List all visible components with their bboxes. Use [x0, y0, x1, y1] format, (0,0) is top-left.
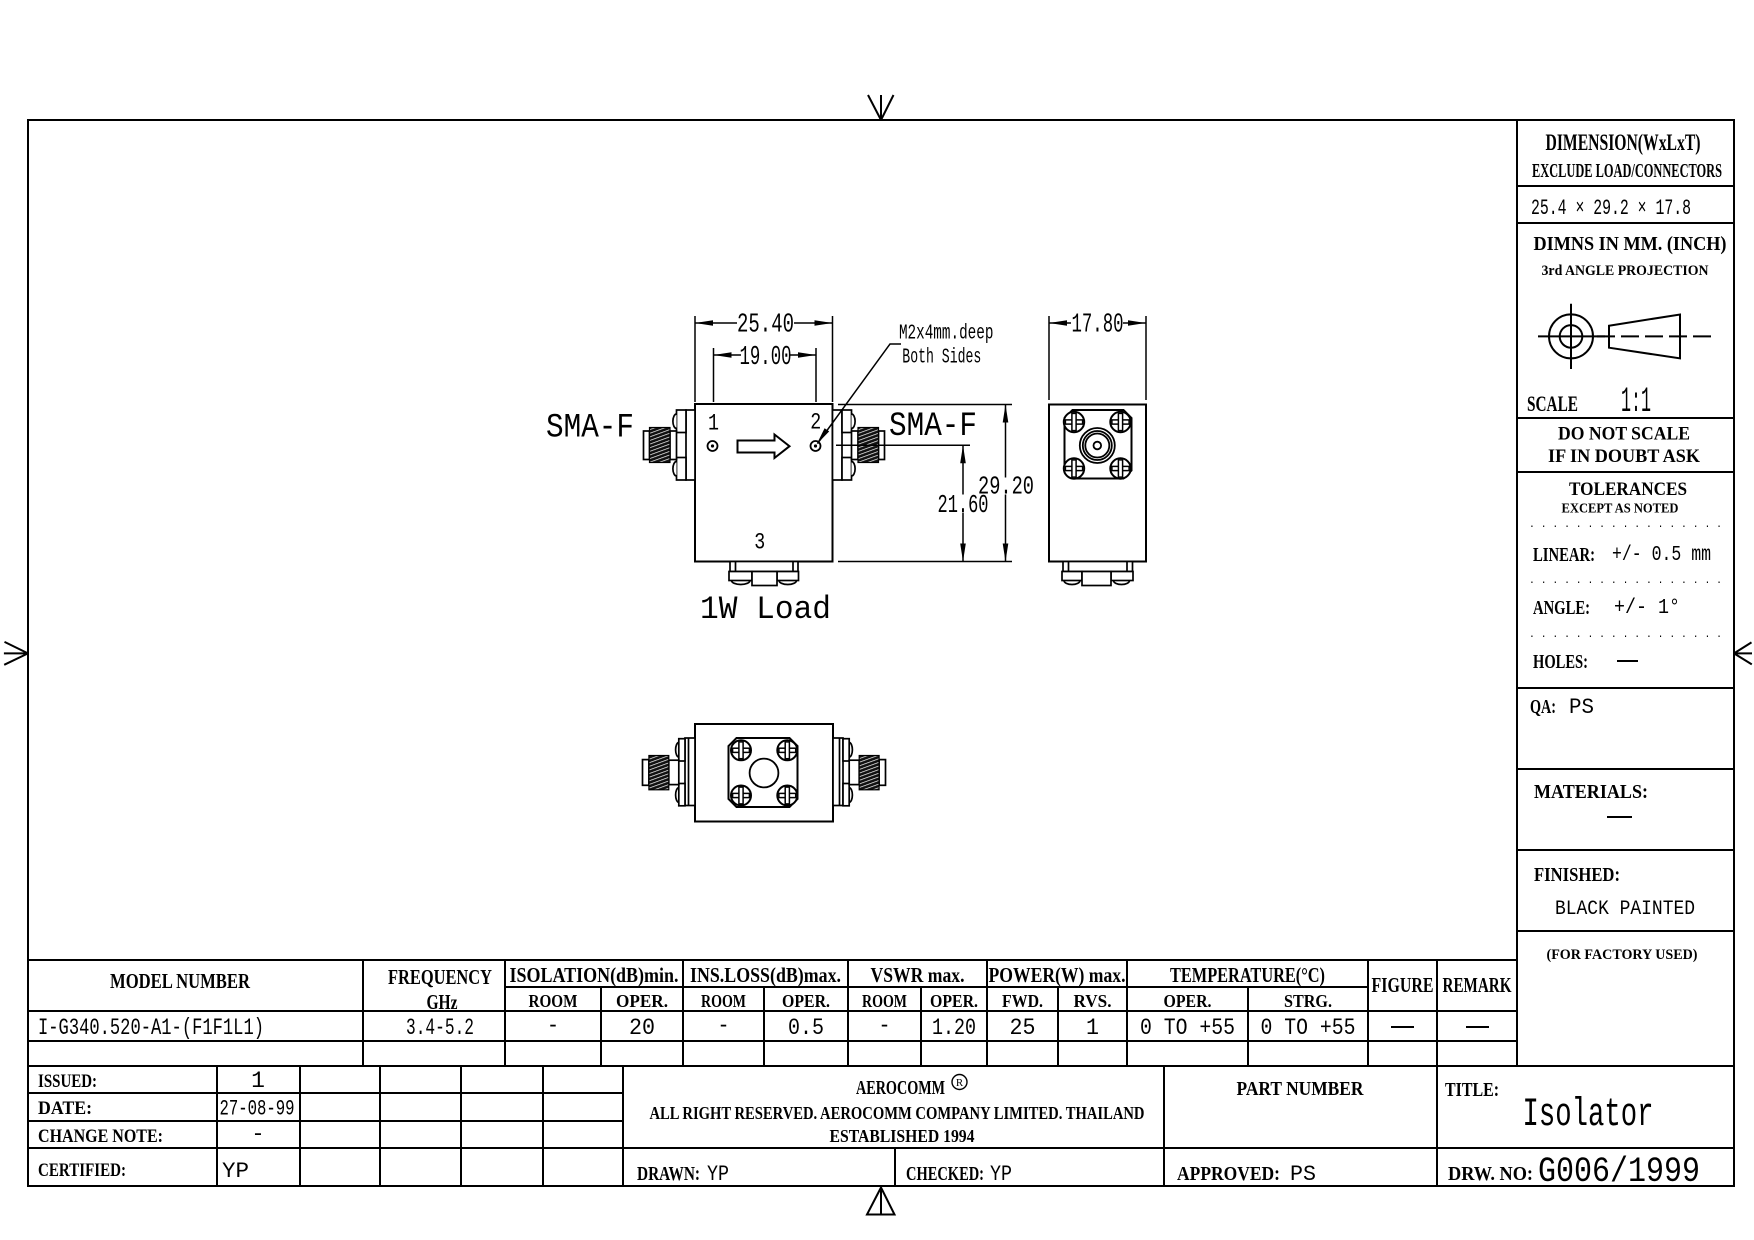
svg-text:DRAWN:: DRAWN:: [637, 1163, 700, 1185]
svg-text:VSWR max.: VSWR max.: [871, 963, 965, 987]
svg-text:ROOM: ROOM: [862, 991, 907, 1011]
svg-text:17.80: 17.80: [1072, 311, 1124, 341]
svg-text:1W Load: 1W Load: [700, 591, 831, 628]
svg-text:0 TO +55: 0 TO +55: [1261, 1015, 1356, 1041]
svg-text:INS.LOSS(dB)max.: INS.LOSS(dB)max.: [690, 963, 841, 987]
svg-text:FWD.: FWD.: [1002, 991, 1043, 1011]
svg-text:3rd ANGLE PROJECTION: 3rd ANGLE PROJECTION: [1542, 263, 1709, 279]
svg-text:FREQUENCY: FREQUENCY: [388, 965, 492, 989]
svg-text:RVS.: RVS.: [1074, 991, 1112, 1011]
svg-text:(FOR FACTORY USED): (FOR FACTORY USED): [1547, 947, 1698, 963]
svg-text:1:1: 1:1: [1621, 382, 1651, 422]
svg-text:CHECKED:: CHECKED:: [906, 1163, 984, 1185]
svg-text:EXCLUDE LOAD/CONNECTORS: EXCLUDE LOAD/CONNECTORS: [1532, 160, 1722, 182]
svg-text:ISSUED:: ISSUED:: [38, 1071, 97, 1092]
svg-text:BLACK PAINTED: BLACK PAINTED: [1555, 898, 1695, 921]
svg-text:ANGLE:: ANGLE:: [1533, 597, 1590, 619]
svg-text:. . . . . . . . . . . . . . .: . . . . . . . . . . . . . . . . .: [1529, 630, 1722, 641]
svg-text:Isolator: Isolator: [1523, 1093, 1654, 1138]
svg-text:MATERIALS:: MATERIALS:: [1534, 781, 1648, 803]
svg-text:21.60: 21.60: [938, 490, 989, 520]
svg-text:QA:: QA:: [1530, 696, 1556, 718]
svg-text:19.00: 19.00: [740, 343, 792, 373]
svg-text:APPROVED:: APPROVED:: [1177, 1163, 1280, 1185]
svg-text:ROOM: ROOM: [529, 991, 578, 1011]
svg-text:EXCEPT AS NOTED: EXCEPT AS NOTED: [1562, 502, 1679, 517]
svg-text:SMA-F: SMA-F: [546, 410, 634, 448]
svg-text:FINISHED:: FINISHED:: [1534, 864, 1620, 886]
svg-text:20: 20: [629, 1015, 655, 1041]
svg-text:POWER(W) max.: POWER(W) max.: [989, 963, 1126, 987]
svg-text:25.40: 25.40: [737, 311, 794, 341]
svg-text:-: -: [547, 1013, 559, 1039]
svg-text:ALL RIGHT RESERVED. AEROCOMM C: ALL RIGHT RESERVED. AEROCOMM COMPANY LIM…: [650, 1103, 1145, 1123]
svg-text:CHANGE NOTE:: CHANGE NOTE:: [38, 1126, 163, 1147]
svg-text:DATE:: DATE:: [38, 1098, 92, 1119]
svg-text:2: 2: [810, 410, 821, 436]
svg-text:TITLE:: TITLE:: [1445, 1079, 1499, 1101]
svg-text:YP: YP: [707, 1162, 729, 1187]
svg-text:LINEAR:: LINEAR:: [1533, 544, 1595, 566]
svg-text:GHz: GHz: [427, 990, 458, 1014]
svg-text:25.4 × 29.2 × 17.8: 25.4 × 29.2 × 17.8: [1531, 196, 1691, 221]
svg-text:SMA-F: SMA-F: [889, 408, 977, 446]
svg-text:DIMENSION(WxLxT): DIMENSION(WxLxT): [1546, 130, 1701, 155]
svg-text:G006/1999: G006/1999: [1538, 1152, 1700, 1192]
svg-text:STRG.: STRG.: [1284, 991, 1332, 1011]
svg-text:-: -: [251, 1122, 264, 1147]
svg-text:-: -: [718, 1013, 730, 1039]
svg-text:1: 1: [251, 1068, 265, 1094]
svg-text:PS: PS: [1290, 1162, 1316, 1187]
svg-text:CERTIFIED:: CERTIFIED:: [38, 1160, 126, 1181]
svg-text:1: 1: [1086, 1015, 1099, 1041]
svg-text:PS: PS: [1569, 695, 1594, 720]
svg-text:I-G340.520-A1-(F1F1L1): I-G340.520-A1-(F1F1L1): [38, 1015, 264, 1041]
svg-text:1: 1: [708, 411, 719, 437]
svg-text:. . . . . . . . . . . . . . .: . . . . . . . . . . . . . . . . .: [1529, 520, 1722, 531]
svg-text:1.20: 1.20: [932, 1015, 976, 1041]
svg-text:PART NUMBER: PART NUMBER: [1237, 1078, 1364, 1100]
svg-text:+/- 0.5 mm: +/- 0.5 mm: [1612, 544, 1711, 567]
svg-text:IF IN DOUBT ASK: IF IN DOUBT ASK: [1548, 446, 1700, 467]
svg-text:0 TO +55: 0 TO +55: [1140, 1015, 1235, 1041]
svg-text:TOLERANCES: TOLERANCES: [1569, 479, 1687, 500]
svg-text:DRW. NO:: DRW. NO:: [1448, 1163, 1533, 1185]
svg-text:TEMPERATURE(°C): TEMPERATURE(°C): [1170, 963, 1325, 987]
svg-text:-: -: [879, 1013, 891, 1039]
svg-text:DO NOT SCALE: DO NOT SCALE: [1558, 424, 1690, 445]
svg-text:. . . . . . . . . . . . . . .: . . . . . . . . . . . . . . . . .: [1529, 576, 1722, 587]
svg-text:ESTABLISHED 1994: ESTABLISHED 1994: [830, 1126, 975, 1146]
svg-text:OPER.: OPER.: [782, 991, 830, 1011]
svg-text:OPER.: OPER.: [1164, 991, 1212, 1011]
svg-text:ISOLATION(dB)min.: ISOLATION(dB)min.: [510, 963, 679, 987]
svg-text:3.4-5.2: 3.4-5.2: [406, 1015, 474, 1041]
svg-text:25: 25: [1010, 1015, 1036, 1041]
svg-text:MODEL NUMBER: MODEL NUMBER: [110, 969, 251, 993]
svg-text:+/- 1°: +/- 1°: [1614, 597, 1680, 620]
svg-text:AEROCOMM: AEROCOMM: [856, 1077, 945, 1099]
svg-text:27-08-99: 27-08-99: [220, 1097, 295, 1122]
svg-text:FIGURE: FIGURE: [1372, 973, 1434, 997]
svg-text:Both Sides: Both Sides: [902, 347, 981, 370]
svg-text:YP: YP: [222, 1159, 249, 1184]
svg-text:HOLES:: HOLES:: [1533, 651, 1588, 673]
svg-text:DIMNS IN MM. (INCH): DIMNS IN MM. (INCH): [1534, 233, 1727, 255]
svg-text:M2x4mm.deep: M2x4mm.deep: [899, 323, 994, 346]
svg-text:YP: YP: [990, 1162, 1012, 1187]
svg-text:R: R: [956, 1077, 964, 1089]
svg-text:3: 3: [754, 530, 765, 556]
svg-text:OPER.: OPER.: [930, 991, 978, 1011]
svg-text:0.5: 0.5: [788, 1015, 824, 1041]
svg-text:SCALE: SCALE: [1527, 391, 1578, 416]
svg-text:OPER.: OPER.: [616, 991, 668, 1011]
svg-text:ROOM: ROOM: [701, 991, 746, 1011]
svg-text:REMARK: REMARK: [1443, 973, 1512, 997]
